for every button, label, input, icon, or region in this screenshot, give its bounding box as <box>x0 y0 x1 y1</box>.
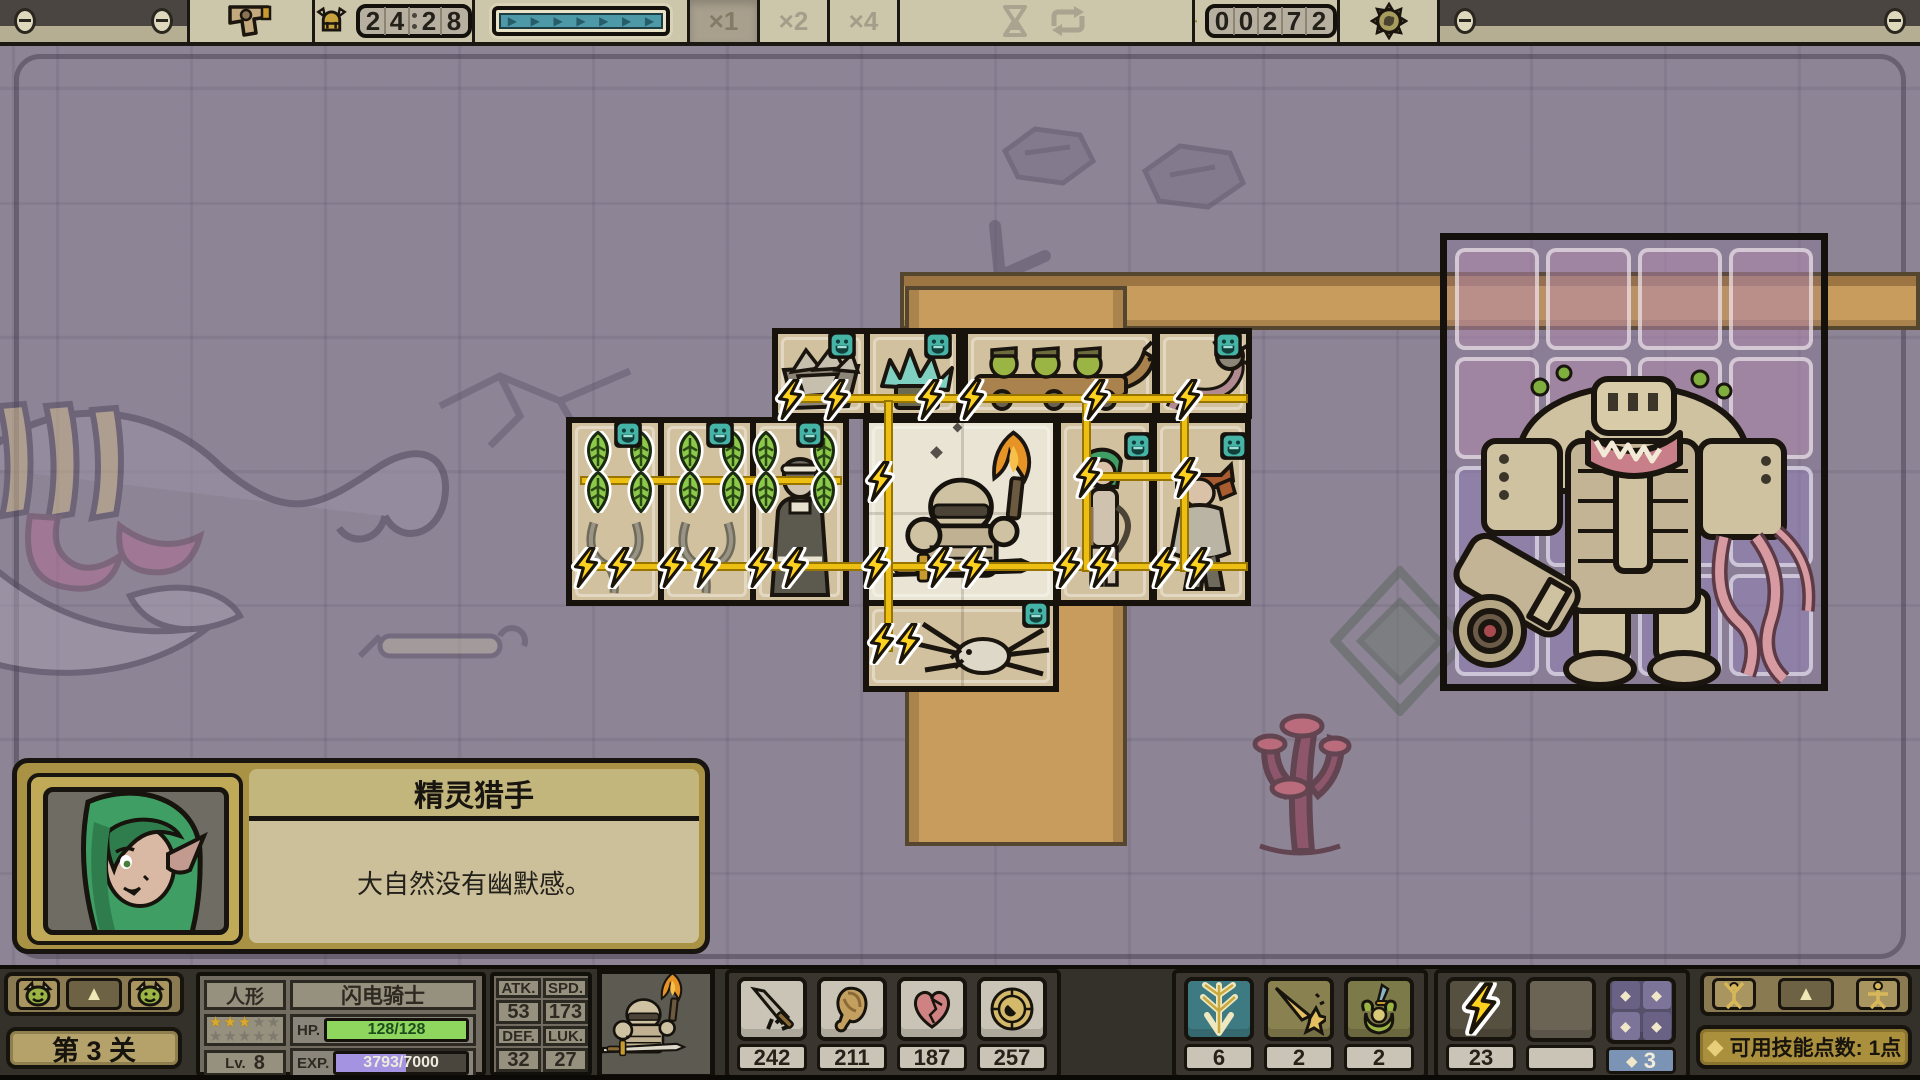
lightning-pylon-skill-button[interactable]: 6 <box>1184 977 1254 1071</box>
gear-icon[interactable] <box>1370 2 1408 40</box>
skill-up-button[interactable]: ▲ <box>1778 978 1834 1010</box>
speed-x4-button[interactable]: ×4 <box>830 0 900 42</box>
bone-decoration <box>350 606 550 686</box>
elf-hunter-portrait <box>43 787 229 935</box>
dialog-title: 精灵猎手 <box>249 769 699 821</box>
comet-skill-button[interactable]: 2 <box>1264 977 1334 1071</box>
hp-label: HP. <box>297 1022 320 1039</box>
heart-icon <box>897 977 967 1041</box>
skill-count: 6 <box>1184 1044 1254 1071</box>
energy-line <box>580 476 842 485</box>
screw-icon <box>1884 8 1906 34</box>
top-left-section <box>0 0 190 42</box>
leaf-icon <box>624 471 658 513</box>
progress-arrow-icon: ▶ <box>576 14 585 28</box>
monster-face-icon <box>795 419 825 449</box>
item-count: 242 <box>737 1044 807 1071</box>
star-icon: ★ <box>238 1028 252 1045</box>
dead-worm-decoration <box>0 346 470 746</box>
hp-bar: 128/128 <box>324 1018 469 1042</box>
timer-digit: 4 <box>386 7 410 35</box>
timer-digit: 8 <box>442 7 466 35</box>
coin-digit: 0 <box>1211 7 1235 35</box>
star-icon: ★ <box>223 1028 237 1045</box>
lightning-bolt-icon <box>604 547 636 589</box>
attr-panel: ATK. SPD. 53 173 DEF. LUK. 32 27 <box>490 972 592 1076</box>
medal-item-button[interactable]: 257 <box>977 977 1047 1071</box>
wave-control-section <box>900 0 1195 42</box>
level-label: Lv. <box>225 1055 246 1072</box>
lightning-bolt-icon <box>958 547 990 589</box>
coin-counter: 0 0 2 7 2 <box>1205 4 1337 38</box>
lightning-bolt-icon <box>1172 379 1204 421</box>
hero-portrait[interactable] <box>597 969 715 1079</box>
top-right-section <box>1440 0 1920 42</box>
lightning-bolt-icon <box>1052 547 1084 589</box>
bolt-icon <box>1446 977 1516 1041</box>
hp-value: 128/128 <box>327 1021 466 1039</box>
dialog-text: 大自然没有幽默感。 <box>249 821 699 943</box>
leaf-icon <box>673 431 707 473</box>
lightning-bolt-icon <box>914 379 946 421</box>
flag-icon[interactable] <box>224 3 278 39</box>
monster-face-icon <box>827 330 857 360</box>
lightning-bolt-icon <box>1086 547 1118 589</box>
tile-goblin-cart[interactable] <box>962 328 1158 419</box>
hourglass-icon[interactable] <box>1002 4 1028 38</box>
heart-item-button[interactable]: 187 <box>897 977 967 1071</box>
exp-value: 3793/7000 <box>336 1054 466 1072</box>
leaf-icon <box>749 431 783 473</box>
hp-row: HP. 128/128 <box>290 1014 476 1046</box>
monster-face-icon <box>1219 431 1249 461</box>
exp-label: EXP. <box>297 1055 329 1072</box>
spd-label: SPD. <box>543 978 588 998</box>
level-cell: Lv. 8 <box>204 1050 286 1076</box>
meat-item-button[interactable]: 211 <box>817 977 887 1071</box>
top-bar: 2 4 2 8 ▶▶▶▶▶▶▶ ×1 ×2 ×4 <box>0 0 1920 46</box>
skill-nav-bar: ▲ <box>1700 972 1912 1016</box>
skill-count: 2 <box>1264 1044 1334 1071</box>
lightning-bolt-icon <box>864 461 896 503</box>
dialog-panel: 精灵猎手 大自然没有幽默感。 <box>12 758 710 954</box>
meat-icon <box>817 977 887 1041</box>
screw-icon <box>151 8 173 34</box>
monster-face-icon <box>1213 330 1243 360</box>
speed-x1-button[interactable]: ×1 <box>690 0 760 42</box>
loop-icon[interactable] <box>1046 4 1090 38</box>
wave-timer-display: 2 4 2 8 <box>356 4 472 38</box>
race-label: 人形 <box>204 980 286 1010</box>
stats-panel: 人形 闪电骑士 ★★★★★★★★★★ Lv. 8 HP. 128/128 EXP… <box>196 972 486 1076</box>
speed-x2-button[interactable]: ×2 <box>760 0 830 42</box>
screw-icon <box>14 8 36 34</box>
spd-value: 173 <box>543 1000 588 1024</box>
coin-digit: 0 <box>1235 7 1259 35</box>
coin-digit: 7 <box>1283 7 1307 35</box>
leaf-icon <box>807 471 841 513</box>
wave-progress-fill: ▶▶▶▶▶▶▶ <box>499 13 663 29</box>
empty-slot <box>1526 977 1596 1042</box>
leaf-icon <box>581 471 615 513</box>
wave-timer-section: 2 4 2 8 <box>315 0 475 42</box>
skill-count: 2 <box>1344 1044 1414 1071</box>
progress-arrow-icon: ▶ <box>553 14 562 28</box>
enemy-nav-bar: ▲ <box>4 972 184 1016</box>
boss-robot <box>1448 301 1820 691</box>
skill-points-label: 可用技能点数: <box>1730 1032 1863 1062</box>
hex-decoration <box>975 91 1265 231</box>
goblin-next-button[interactable] <box>128 978 172 1010</box>
monster-face-icon <box>1123 431 1153 461</box>
progress-arrow-icon: ▶ <box>531 14 540 28</box>
lightning-bolt-icon <box>570 547 602 589</box>
atk-value: 53 <box>496 1000 541 1024</box>
consumables-group: 242 211 187 <box>725 969 1061 1079</box>
luk-label: LUK. <box>543 1026 588 1046</box>
lightning-bolt-icon <box>860 547 892 589</box>
progress-arrow-icon: ▶ <box>508 14 517 28</box>
level-badge: 第 3 关 <box>6 1027 182 1069</box>
leaf-icon <box>749 471 783 513</box>
progress-arrow-icon: ▶ <box>599 14 608 28</box>
progress-arrow-icon: ▶ <box>645 14 654 28</box>
lightning-bolt-icon <box>924 547 956 589</box>
flag-section <box>190 0 315 42</box>
def-label: DEF. <box>496 1026 541 1046</box>
lightning-bolt-icon <box>956 379 988 421</box>
star-rating: ★★★★★★★★★★ <box>204 1014 286 1046</box>
lightning-bolt-icon <box>656 547 688 589</box>
exp-bar: 3793/7000 <box>333 1051 469 1075</box>
lightning-bolt-icon <box>1072 457 1104 499</box>
portrait-frame <box>27 773 243 945</box>
hotbar-count <box>1526 1045 1596 1071</box>
skills-group: 6 2 <box>1172 969 1428 1079</box>
lightning-bolt-icon <box>1080 379 1112 421</box>
progress-arrow-icon: ▶ <box>622 14 631 28</box>
skill-points-plaque: ◆ 可用技能点数: 1点 <box>1696 1025 1912 1069</box>
goblin-prev-button[interactable] <box>16 978 60 1010</box>
timer-digit: 2 <box>418 7 442 35</box>
energy-line <box>884 400 893 652</box>
wave-progress-bar: ▶▶▶▶▶▶▶ <box>492 6 670 36</box>
bolt-hotbar-button[interactable]: 23 <box>1446 977 1516 1071</box>
star-icon: ★ <box>267 1028 281 1045</box>
wave-progress-section: ▶▶▶▶▶▶▶ <box>475 0 690 42</box>
empty-hotbar-slot[interactable] <box>1526 977 1596 1071</box>
skill-point-diamond-icon: ◆ <box>1707 1034 1724 1060</box>
lightning-bolt-icon <box>892 623 924 665</box>
game-screen: 2 4 2 8 ▶▶▶▶▶▶▶ ×1 ×2 ×4 <box>0 0 1920 1080</box>
lightning-bolt-icon <box>1148 547 1180 589</box>
lightning-bolt-icon <box>690 547 722 589</box>
lightning-bolt-icon <box>774 379 806 421</box>
hotbar-count: 23 <box>1446 1044 1516 1071</box>
monster-face-icon <box>923 330 953 360</box>
leaf-icon <box>581 431 615 473</box>
item-count: 187 <box>897 1044 967 1071</box>
lightning-bolt-icon <box>1170 457 1202 499</box>
bottom-bar: ▲ 第 3 关 人形 闪电骑士 ★★★★★★★★★★ Lv. 8 <box>0 965 1920 1080</box>
dialog-content: 精灵猎手 大自然没有幽默感。 <box>249 769 699 943</box>
monster-face-icon <box>613 419 643 449</box>
coin-icon <box>1195 5 1197 37</box>
sword-item-button[interactable]: 242 <box>737 977 807 1071</box>
hotbar-group: 23 ◆◆◆◆ ◆ 3 <box>1434 969 1690 1079</box>
lightning-bolt-icon <box>778 547 810 589</box>
luk-value: 27 <box>543 1048 588 1072</box>
figure-cheer-button[interactable] <box>1712 978 1756 1010</box>
coin-digit: 2 <box>1307 7 1331 35</box>
skill-points-value: 1点 <box>1869 1032 1902 1062</box>
monster-face-icon <box>705 419 735 449</box>
level-value: 8 <box>254 1052 265 1075</box>
def-value: 32 <box>496 1048 541 1072</box>
lightning-bolt-icon <box>744 547 776 589</box>
settings-section <box>1340 0 1440 42</box>
helmet-icon <box>315 2 348 40</box>
hero-sword-skill-button[interactable]: 2 <box>1344 977 1414 1071</box>
item-count: 211 <box>817 1044 887 1071</box>
hero-sword-icon <box>1344 977 1414 1041</box>
lightning-pylon-icon <box>1184 977 1254 1041</box>
lightning-bolt-icon <box>820 379 852 421</box>
item-count: 257 <box>977 1044 1047 1071</box>
exp-row: EXP. 3793/7000 <box>290 1048 476 1078</box>
star-icon: ★ <box>252 1028 266 1045</box>
medal-icon <box>977 977 1047 1041</box>
leaf-icon <box>673 471 707 513</box>
enemy-up-button[interactable]: ▲ <box>66 978 122 1010</box>
comet-icon <box>1264 977 1334 1041</box>
coin-digit: 2 <box>1259 7 1283 35</box>
currency-section: 0 0 2 7 2 <box>1195 0 1340 42</box>
star-icon: ★ <box>209 1028 223 1045</box>
leaf-icon <box>716 471 750 513</box>
hotbar-count: ◆ 3 <box>1606 1047 1676 1074</box>
diamond-grid-icon: ◆◆◆◆ <box>1606 977 1676 1044</box>
screw-icon <box>1454 8 1476 34</box>
timer-colon <box>410 13 418 29</box>
figure-stand-button[interactable] <box>1856 978 1900 1010</box>
diamond-grid-hotbar-button[interactable]: ◆◆◆◆ ◆ 3 <box>1606 977 1676 1071</box>
class-name: 闪电骑士 <box>290 980 476 1010</box>
timer-digit: 2 <box>362 7 386 35</box>
atk-label: ATK. <box>496 978 541 998</box>
lightning-bolt-icon <box>1182 547 1214 589</box>
monster-face-icon <box>1021 599 1051 629</box>
sword-icon <box>737 977 807 1041</box>
